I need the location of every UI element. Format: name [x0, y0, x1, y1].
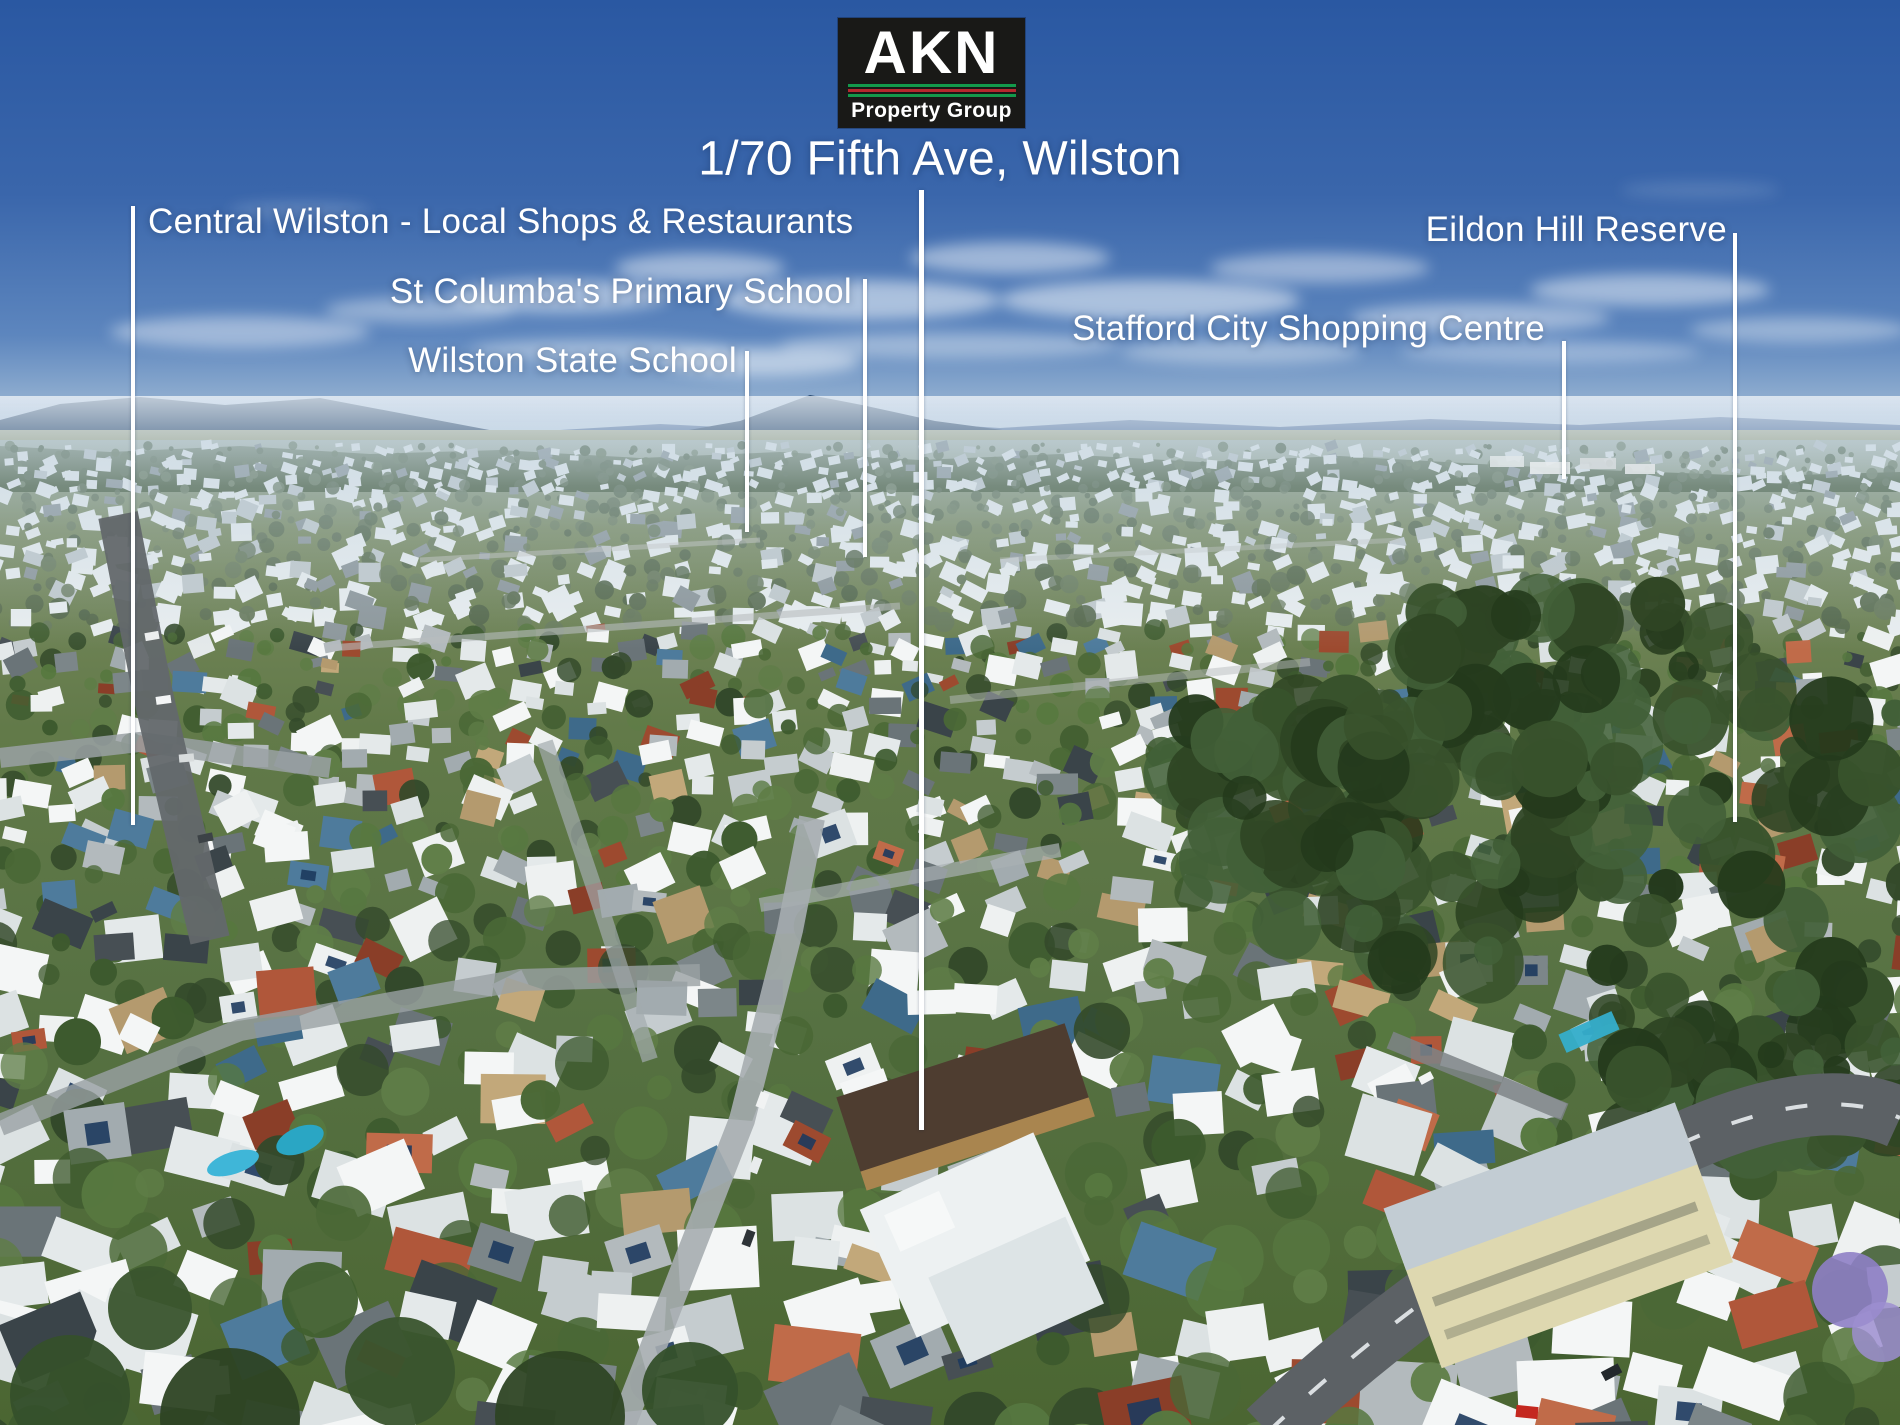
logo-stripe-green — [848, 84, 1016, 87]
agency-logo-name: AKN — [864, 25, 1000, 80]
central-wilston-label: Central Wilston - Local Shops & Restaura… — [148, 203, 853, 242]
stafford-city-label: Stafford City Shopping Centre — [1072, 310, 1545, 349]
logo-stripes — [848, 84, 1016, 97]
logo-stripe-red — [848, 89, 1016, 92]
stafford-city-pointer-line — [1562, 341, 1566, 479]
st-columbas-label: St Columba's Primary School — [390, 273, 852, 312]
eildon-hill-pointer-line — [1733, 233, 1737, 822]
property-pointer-line — [919, 190, 924, 1130]
agency-logo: AKN Property Group — [838, 18, 1025, 128]
wilston-state-school-label: Wilston State School — [408, 342, 737, 381]
eildon-hill-label: Eildon Hill Reserve — [1426, 211, 1727, 250]
st-columbas-pointer-line — [863, 279, 867, 557]
property-address-title: 1/70 Fifth Ave, Wilston — [698, 134, 1182, 187]
aerial-marketing-image: AKN Property Group 1/70 Fifth Ave, Wilst… — [0, 0, 1900, 1425]
logo-stripe-green — [848, 94, 1016, 97]
agency-logo-tagline: Property Group — [851, 100, 1012, 121]
central-wilston-pointer-line — [131, 206, 135, 825]
annotation-overlay: AKN Property Group 1/70 Fifth Ave, Wilst… — [0, 0, 1900, 1425]
wilston-state-school-pointer-line — [745, 351, 749, 532]
